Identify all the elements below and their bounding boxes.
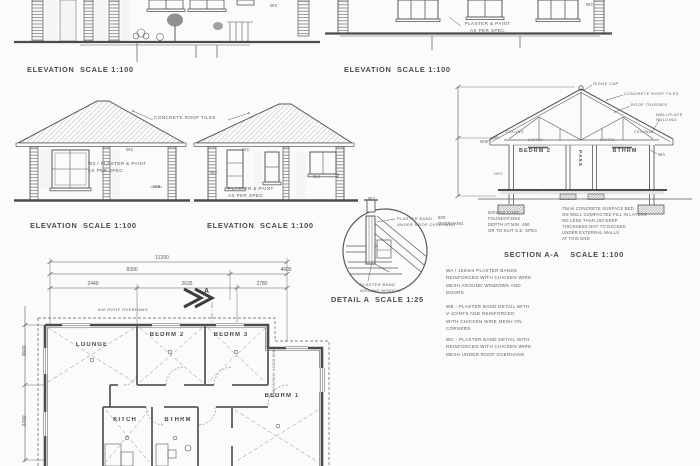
section-room-bedrm2: BEDRM 2 bbox=[512, 148, 558, 154]
dim-main: 8390 bbox=[110, 267, 154, 273]
section-room-pass: PASS bbox=[577, 144, 582, 174]
lintol-label: LINTOL bbox=[600, 138, 616, 144]
note-wa: WA / 150mm PLASTER BANDS REINFORCED WITH… bbox=[446, 267, 531, 296]
overhang-label-right: 600 ROOF OVERHANG bbox=[270, 350, 276, 410]
roof-tiles-callout: CONCRETE ROOF TILES bbox=[154, 115, 216, 122]
room-label-bthrm: BTHRM bbox=[158, 417, 198, 423]
band-mark-w4: W4 bbox=[210, 170, 217, 177]
ceiling-label: CEILING bbox=[634, 130, 652, 136]
room-label-kitch: KITCH bbox=[106, 417, 144, 423]
dim-seg-2: 2635 bbox=[168, 281, 206, 287]
roof-tiles-callout: CONCRETE ROOF TILES bbox=[624, 91, 679, 97]
dim-left-lower: 2430 bbox=[22, 404, 28, 438]
elevation-2-label: ELEVATION SCALE 1:100 bbox=[344, 65, 451, 74]
architectural-drawing-sheet: ELEVATION SCALE 1:100 ELEVATION SCALE 1:… bbox=[0, 0, 700, 466]
detail-callout-top: PLASTER BAND UNDER ROOF OVERHANG bbox=[397, 216, 456, 228]
dpc-label: DPC bbox=[494, 172, 503, 178]
elevation-3-label: ELEVATION SCALE 1:100 bbox=[30, 221, 137, 230]
elevation-1-label: ELEVATION SCALE 1:100 bbox=[27, 65, 134, 74]
foundation-note: 600x250 CONC. FOUNDATIONS DEPTH AT MIN. … bbox=[488, 210, 537, 234]
window-mark-w3: W3 bbox=[270, 3, 277, 10]
dim-right: 4605 bbox=[268, 267, 304, 273]
ceiling-label: CEILING bbox=[506, 130, 524, 136]
room-label-bedrm3: BEDRM 3 bbox=[208, 332, 254, 338]
surface-bed-note: 75mm CONCRETE SURFACE BED ON WELL COMPAC… bbox=[562, 206, 647, 243]
wallplate-callout: WALLPLATE HOLDING bbox=[656, 112, 683, 122]
note-wb: WB - PLASTER BAND DETAIL WITH V-JOINTS A… bbox=[446, 303, 529, 332]
band-mark-w4: W4 bbox=[313, 174, 320, 181]
mark-wc: WC bbox=[480, 139, 488, 146]
dim-left-upper: 3600 bbox=[22, 334, 28, 368]
room-label-bedrm2: BEDRM 2 bbox=[144, 332, 190, 338]
detail-callout-bottom: PLASTER BAND AROUND WINDOW bbox=[360, 282, 401, 294]
finish-note: W3 / PLASTER & PAINT AS PER SPEC bbox=[88, 161, 146, 175]
elevation-4-label: ELEVATION SCALE 1:100 bbox=[207, 221, 314, 230]
band-mark-wb: WB bbox=[153, 184, 161, 191]
overhang-label-top: 600 ROOF OVERHANG bbox=[98, 307, 148, 313]
band-mark-wc: WC bbox=[242, 147, 250, 154]
mark-wa: WA bbox=[658, 152, 666, 159]
band-mark-w2: W2 bbox=[368, 196, 375, 203]
finish-note: PLASTER & PAINT AS PER SPEC bbox=[228, 186, 274, 200]
dim-total: 11200 bbox=[140, 255, 184, 261]
roof-trusses-callout: ROOF TRUSSES bbox=[631, 102, 667, 108]
section-marker-a: A bbox=[204, 288, 209, 295]
lintol-label: LINTOL bbox=[528, 138, 544, 144]
ridge-cap-callout: RIDGE CAP bbox=[593, 81, 619, 87]
floor-plan-drawing bbox=[23, 258, 330, 466]
finish-note: PLASTER & PAINT AS PER SPEC bbox=[460, 21, 515, 35]
section-aa-label: SECTION A-A SCALE 1:100 bbox=[504, 250, 624, 259]
dim-seg-1: 2440 bbox=[74, 281, 112, 287]
room-label-lounge: LOUNGE bbox=[70, 342, 114, 348]
band-mark-w2: W2 bbox=[126, 147, 133, 154]
detail-a-label: DETAIL A SCALE 1:25 bbox=[331, 295, 424, 304]
dim-seg-3: 2780 bbox=[243, 281, 281, 287]
detail-a-drawing bbox=[343, 200, 433, 293]
window-mark-w2: W2 bbox=[586, 2, 593, 9]
room-label-bedrm1: BEDRM 1 bbox=[258, 393, 306, 399]
note-wc: WC - PLASTER BAND DETAIL WITH REINFORCED… bbox=[446, 336, 531, 358]
section-room-bthrm: BTHRM bbox=[604, 148, 646, 154]
